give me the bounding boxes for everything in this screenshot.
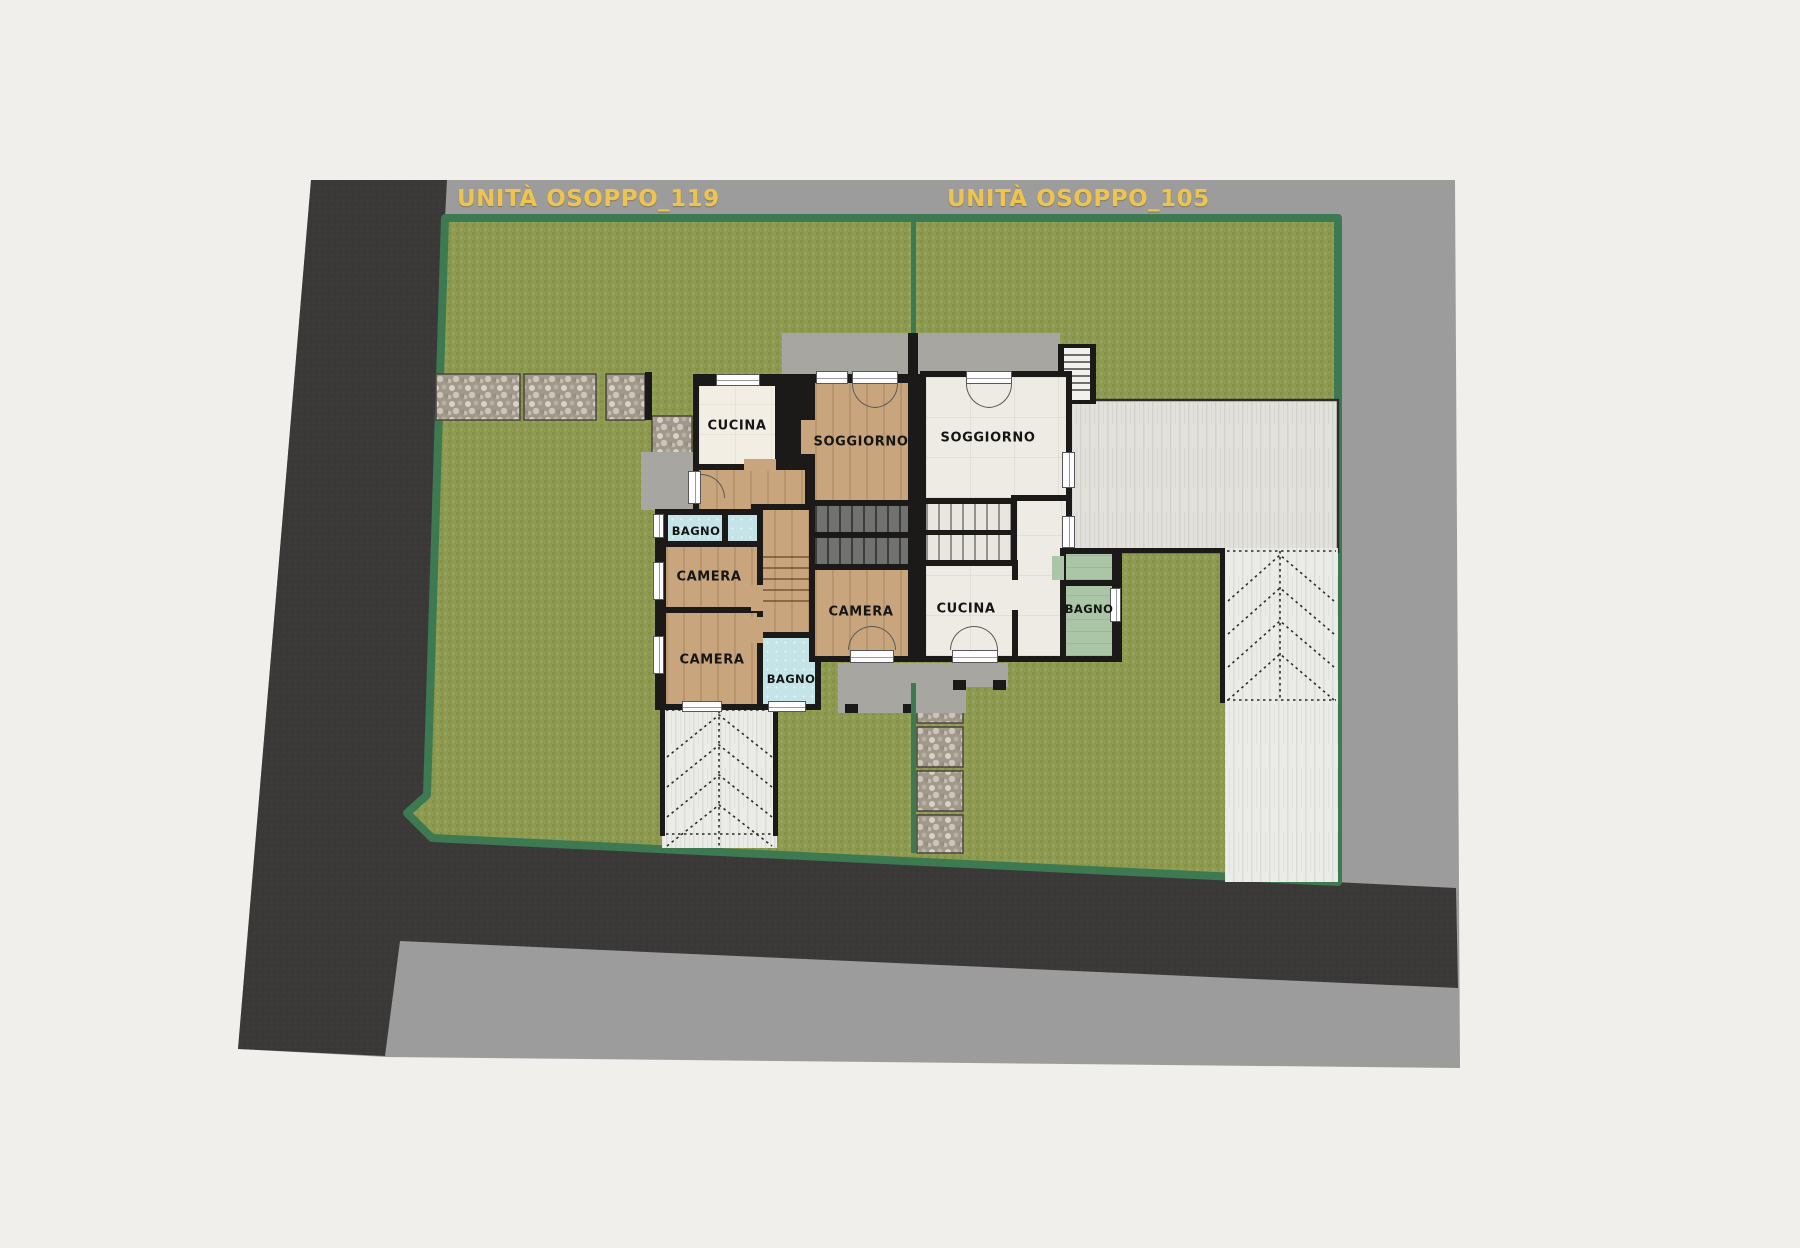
unit-title-119: UNITÀ OSOPPO_119	[457, 186, 720, 212]
window-bagno-119-b-south	[768, 701, 806, 712]
window-bagno-119-west	[653, 514, 664, 538]
driveway-105	[1220, 548, 1338, 882]
label-bagno-119: BAGNO	[672, 524, 721, 538]
window-camera-119-a-west	[653, 562, 664, 600]
label-camera-119-c: CAMERA	[828, 605, 893, 620]
window-soggiorno-105-east	[1062, 452, 1075, 488]
label-camera-119-b: CAMERA	[679, 653, 744, 668]
label-bagno-105: BAGNO	[1065, 602, 1114, 616]
entry-pad-west	[641, 452, 695, 510]
label-soggiorno-105: SOGGIORNO	[941, 431, 1036, 446]
label-soggiorno-119: SOGGIORNO	[814, 435, 909, 450]
stair-105	[920, 498, 1017, 566]
site-plan-canvas: UNITÀ OSOPPO_119 UNITÀ OSOPPO_105	[0, 0, 1800, 1248]
door-camera-119-c-south	[850, 650, 894, 663]
garden-wall-line	[1122, 548, 1225, 553]
door-hall-105-terrace	[1062, 516, 1075, 548]
door-soggiorno-119-north	[852, 371, 898, 384]
label-camera-119-a: CAMERA	[676, 570, 741, 585]
window-cucina-119-north	[716, 374, 760, 386]
porch-north	[782, 333, 1060, 374]
terrace-105	[1066, 400, 1338, 552]
label-bagno-119-b: BAGNO	[767, 672, 816, 686]
stair-divider-119	[815, 532, 908, 538]
label-cucina-105: CUCINA	[936, 602, 995, 617]
door-cucina-105-south	[952, 650, 998, 663]
door-soggiorno-105-north	[966, 371, 1012, 384]
label-cucina-119: CUCINA	[707, 419, 766, 434]
stair-119	[809, 500, 914, 570]
wood-stair-flight-119	[757, 554, 809, 602]
window-soggiorno-119-north	[816, 371, 848, 384]
door-cucina-119-hall	[744, 459, 776, 471]
door-hall-119-west	[688, 471, 701, 504]
stair-divider-105	[926, 530, 1011, 535]
unit-title-105: UNITÀ OSOPPO_105	[947, 186, 1210, 212]
door-camera-119-b	[751, 617, 763, 643]
door-bagno-105	[1052, 556, 1064, 580]
door-cucina-105-hall	[1008, 580, 1022, 610]
window-camera-119-b-west	[653, 636, 664, 674]
door-camera-119-a	[751, 585, 763, 611]
window-camera-119-b-south	[682, 701, 722, 712]
